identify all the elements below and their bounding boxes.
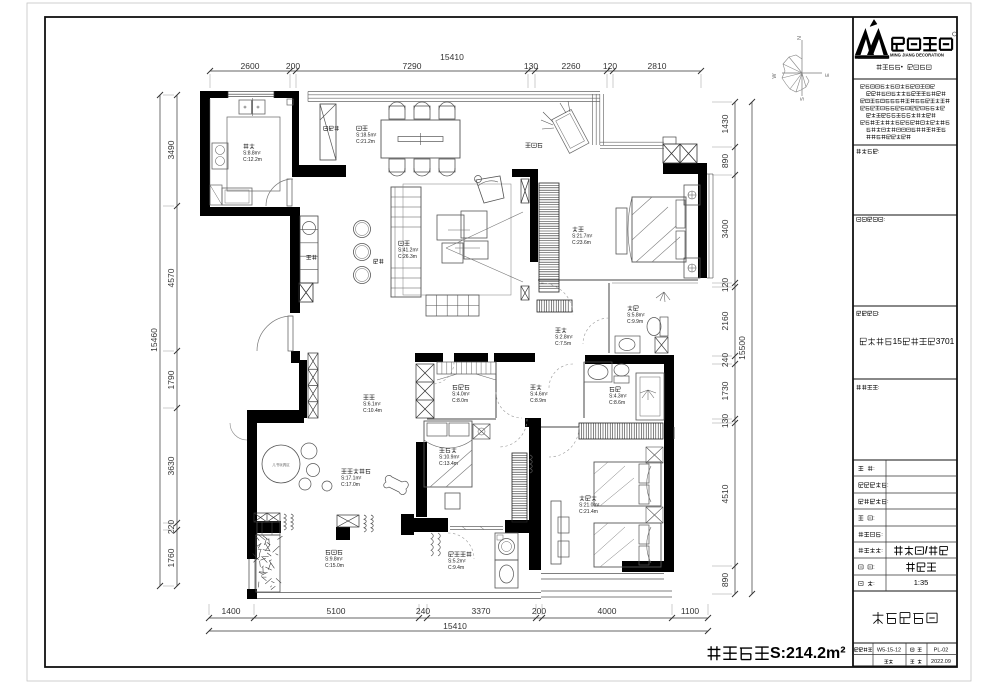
svg-text:7290: 7290: [403, 61, 422, 71]
svg-text:1730: 1730: [720, 381, 730, 400]
svg-text:240: 240: [416, 606, 430, 616]
svg-text:S:10.9m²: S:10.9m²: [439, 455, 460, 461]
svg-text:C:15.0m: C:15.0m: [325, 563, 344, 569]
svg-text:15: 15: [893, 336, 903, 346]
svg-text:S:17.1m²: S:17.1m²: [341, 476, 362, 482]
svg-text:S:4.6m²: S:4.6m²: [530, 392, 548, 398]
svg-text:C:23.6m: C:23.6m: [572, 240, 591, 246]
svg-text:130: 130: [720, 414, 730, 428]
svg-text:C:10.4m: C:10.4m: [363, 408, 382, 414]
svg-text:N: N: [797, 36, 803, 40]
svg-text:C:9.9m: C:9.9m: [627, 319, 643, 325]
svg-text:4510: 4510: [720, 484, 730, 503]
svg-text:1400: 1400: [222, 606, 241, 616]
svg-text:2160: 2160: [720, 311, 730, 330]
svg-text:MING JIANG DECORATION: MING JIANG DECORATION: [890, 53, 944, 58]
svg-text:3370: 3370: [472, 606, 491, 616]
svg-text:E: E: [825, 73, 831, 77]
svg-text:15410: 15410: [443, 621, 467, 631]
svg-text:C:13.4m: C:13.4m: [439, 461, 458, 467]
svg-text:S: S: [800, 97, 806, 101]
svg-text:S:4.0m²: S:4.0m²: [452, 392, 470, 398]
svg-text:5100: 5100: [327, 606, 346, 616]
svg-text:3630: 3630: [166, 456, 176, 475]
svg-text:C:8.9m: C:8.9m: [530, 398, 546, 404]
svg-text:130: 130: [524, 61, 538, 71]
svg-text:2022.09: 2022.09: [931, 659, 951, 665]
svg-text:1790: 1790: [166, 370, 176, 389]
svg-text:C:21.4m: C:21.4m: [579, 509, 598, 515]
svg-text:C:7.5m: C:7.5m: [555, 341, 571, 347]
svg-text:W: W: [772, 73, 778, 79]
svg-text:/: /: [925, 545, 928, 557]
svg-text:890: 890: [720, 573, 730, 587]
svg-text:W5-15-12: W5-15-12: [877, 648, 901, 654]
svg-text:S:41.2m²: S:41.2m²: [398, 248, 419, 254]
svg-text:120: 120: [720, 278, 730, 292]
svg-text:C:17.0m: C:17.0m: [341, 482, 360, 488]
svg-text:C:8.0m: C:8.0m: [452, 398, 468, 404]
svg-text:1430: 1430: [720, 114, 730, 133]
svg-text:4000: 4000: [598, 606, 617, 616]
svg-text:S:5.2m²: S:5.2m²: [448, 559, 466, 565]
svg-text:S:214.2m²: S:214.2m²: [770, 645, 846, 662]
svg-text:S:21.7m²: S:21.7m²: [572, 234, 593, 240]
svg-text:S:9.8m²: S:9.8m²: [325, 557, 343, 563]
svg-text:2600: 2600: [241, 61, 260, 71]
svg-text:1760: 1760: [166, 548, 176, 567]
svg-text:3490: 3490: [166, 140, 176, 159]
svg-text:C:12.2m: C:12.2m: [243, 157, 262, 163]
svg-text:220: 220: [166, 520, 176, 534]
svg-text:C:21.2m: C:21.2m: [356, 139, 375, 145]
svg-text:S:8.8m²: S:8.8m²: [243, 151, 261, 157]
svg-text:S:2.8m²: S:2.8m²: [555, 335, 573, 341]
svg-text:2260: 2260: [562, 61, 581, 71]
svg-text:S:4.3m²: S:4.3m²: [609, 394, 627, 400]
svg-text:C:8.6m: C:8.6m: [609, 400, 625, 406]
svg-text:15460: 15460: [149, 328, 159, 352]
svg-text:3400: 3400: [720, 219, 730, 238]
svg-text:15500: 15500: [737, 336, 747, 360]
svg-text:C:9.4m: C:9.4m: [448, 565, 464, 571]
svg-text:S:21.0m²: S:21.0m²: [579, 503, 600, 509]
svg-text:4570: 4570: [166, 268, 176, 287]
svg-text:200: 200: [532, 606, 546, 616]
svg-text:PL-02: PL-02: [934, 648, 949, 654]
svg-text:3701: 3701: [936, 336, 955, 346]
svg-text:1100: 1100: [681, 606, 700, 616]
svg-text:S:5.8m²: S:5.8m²: [627, 313, 645, 319]
svg-text:15410: 15410: [440, 52, 464, 62]
svg-text:•: •: [901, 64, 903, 71]
svg-text:2810: 2810: [648, 61, 667, 71]
svg-text:240: 240: [720, 353, 730, 367]
svg-text:1:35: 1:35: [914, 578, 929, 587]
svg-text:120: 120: [603, 61, 617, 71]
svg-text:200: 200: [286, 61, 300, 71]
svg-text:S:6.1m²: S:6.1m²: [363, 402, 381, 408]
svg-text:C:26.3m: C:26.3m: [398, 254, 417, 260]
svg-text:S:18.5m²: S:18.5m²: [356, 133, 377, 139]
svg-text:890: 890: [720, 154, 730, 168]
svg-text:儿书玩具区: 儿书玩具区: [272, 462, 290, 467]
